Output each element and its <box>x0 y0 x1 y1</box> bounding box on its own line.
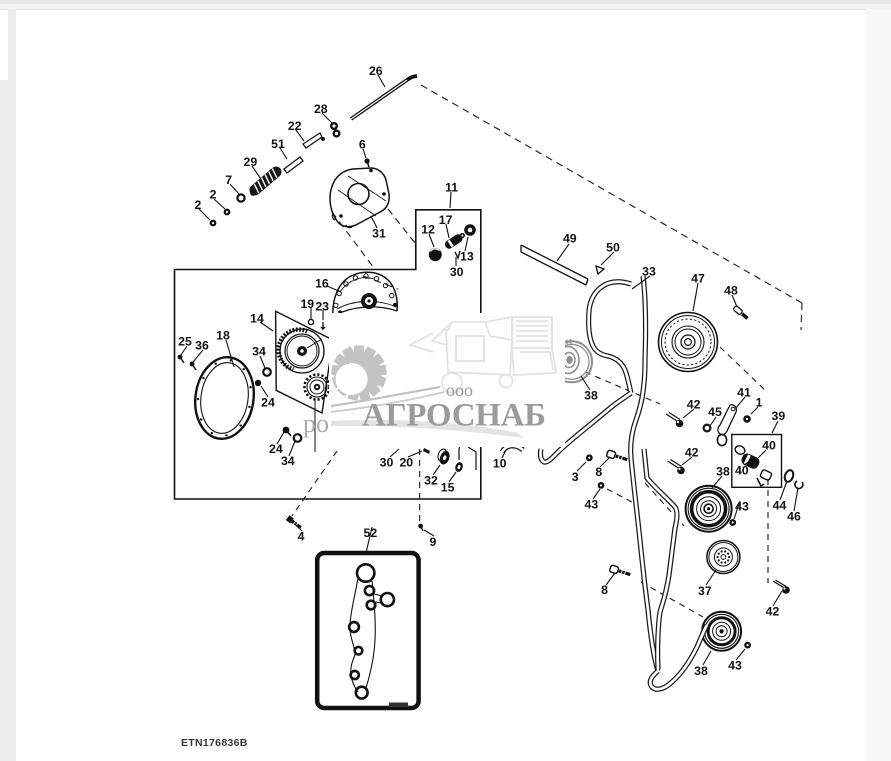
svg-text:13: 13 <box>460 250 474 264</box>
svg-text:12: 12 <box>421 222 435 236</box>
svg-text:8: 8 <box>595 465 602 479</box>
svg-text:44: 44 <box>773 499 787 513</box>
svg-text:31: 31 <box>372 227 386 241</box>
svg-text:34: 34 <box>281 454 295 468</box>
svg-text:40: 40 <box>735 464 749 478</box>
svg-text:24: 24 <box>261 396 275 410</box>
svg-text:42: 42 <box>766 604 780 618</box>
svg-text:46: 46 <box>787 510 801 524</box>
svg-text:49: 49 <box>563 232 577 246</box>
svg-text:34: 34 <box>252 345 266 359</box>
svg-text:11: 11 <box>445 181 458 195</box>
svg-text:30: 30 <box>450 265 464 279</box>
svg-text:26: 26 <box>369 64 383 78</box>
svg-text:19: 19 <box>300 297 314 311</box>
svg-text:3: 3 <box>572 470 579 484</box>
svg-text:30: 30 <box>380 456 394 470</box>
svg-text:22: 22 <box>288 119 302 133</box>
svg-text:4: 4 <box>298 530 305 544</box>
svg-text:32: 32 <box>424 474 438 488</box>
svg-text:23: 23 <box>315 299 329 313</box>
svg-text:37: 37 <box>698 584 712 598</box>
svg-text:48: 48 <box>724 284 738 298</box>
svg-text:18: 18 <box>216 329 230 343</box>
svg-text:8: 8 <box>601 583 608 597</box>
svg-text:43: 43 <box>728 658 742 672</box>
svg-text:28: 28 <box>314 102 328 116</box>
svg-text:20: 20 <box>399 456 413 470</box>
svg-text:ро: ро <box>303 409 329 438</box>
svg-text:10: 10 <box>493 457 507 471</box>
svg-text:40: 40 <box>762 439 776 453</box>
svg-text:38: 38 <box>716 464 730 478</box>
svg-text:29: 29 <box>244 155 258 169</box>
svg-text:43: 43 <box>585 498 599 512</box>
svg-text:51: 51 <box>271 137 285 151</box>
svg-text:АГРОСНАБ: АГРОСНАБ <box>362 398 546 434</box>
svg-text:9: 9 <box>429 535 436 549</box>
svg-text:16: 16 <box>315 277 329 291</box>
svg-text:38: 38 <box>694 664 708 678</box>
svg-text:38: 38 <box>584 389 598 403</box>
svg-text:25: 25 <box>178 335 192 349</box>
svg-text:6: 6 <box>359 138 366 152</box>
svg-text:2: 2 <box>210 188 217 202</box>
svg-text:1: 1 <box>756 395 763 409</box>
svg-text:45: 45 <box>708 405 722 419</box>
svg-text:15: 15 <box>441 480 455 494</box>
svg-text:43: 43 <box>735 500 749 514</box>
svg-text:39: 39 <box>772 409 786 423</box>
